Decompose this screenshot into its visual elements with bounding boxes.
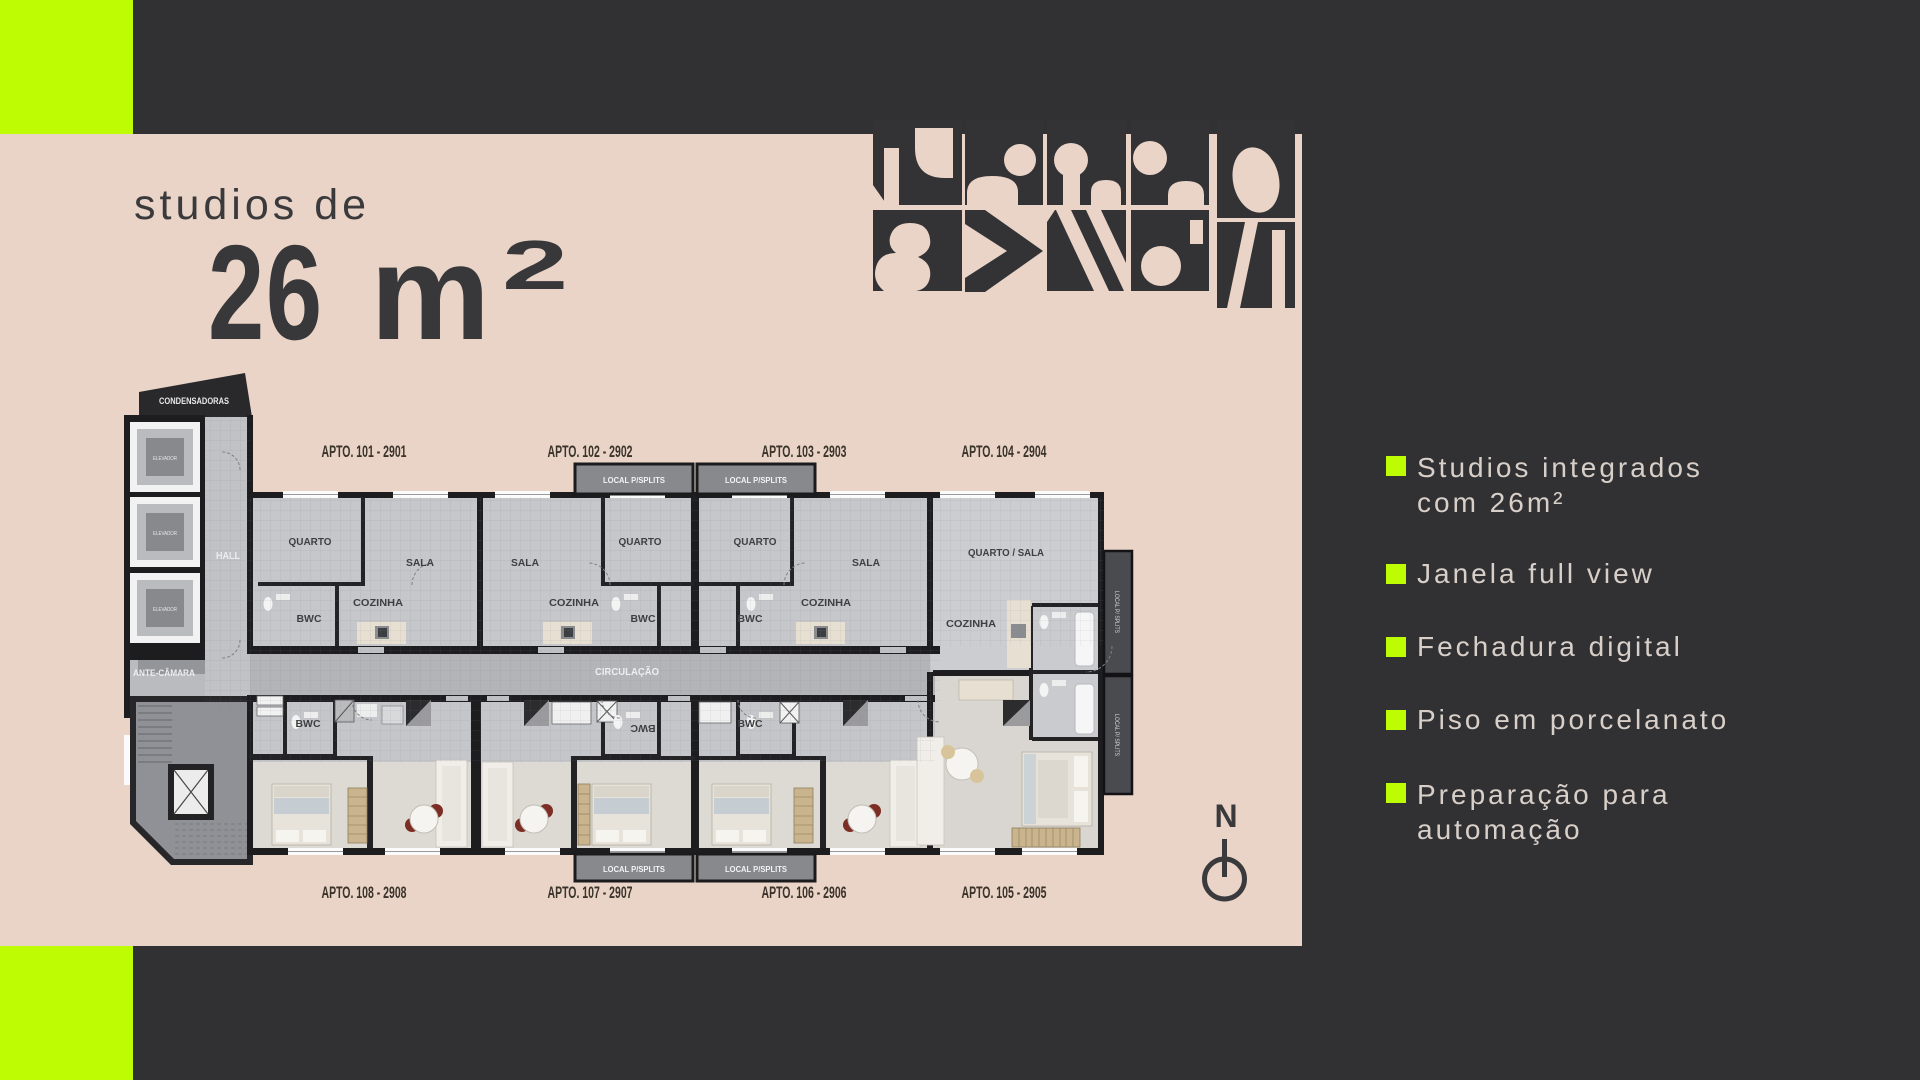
- svg-text:APTO. 104 - 2904: APTO. 104 - 2904: [962, 443, 1048, 461]
- svg-text:ELEVADOR: ELEVADOR: [153, 531, 177, 537]
- svg-text:LOCAL P/SPLITS: LOCAL P/SPLITS: [603, 865, 666, 874]
- svg-text:APTO. 107 - 2907: APTO. 107 - 2907: [548, 884, 633, 902]
- svg-text:LOCAL P/SPLITS: LOCAL P/SPLITS: [725, 865, 788, 874]
- svg-text:LOCAL P/SPLITS: LOCAL P/SPLITS: [725, 476, 788, 485]
- svg-text:ANTE-CÂMARA: ANTE-CÂMARA: [133, 667, 195, 678]
- svg-text:APTO. 103 - 2903: APTO. 103 - 2903: [762, 443, 847, 461]
- svg-text:APTO. 106 - 2906: APTO. 106 - 2906: [762, 884, 847, 902]
- svg-text:APTO. 102 - 2902: APTO. 102 - 2902: [548, 443, 633, 461]
- svg-text:APTO. 105 - 2905: APTO. 105 - 2905: [962, 884, 1047, 902]
- svg-text:LOCAL P/ SPLITS: LOCAL P/ SPLITS: [1113, 591, 1119, 633]
- svg-text:LOCAL P/SPLITS: LOCAL P/SPLITS: [603, 476, 666, 485]
- svg-text:CONDENSADORAS: CONDENSADORAS: [159, 396, 229, 406]
- svg-text:LOCAL P/ SPLITS: LOCAL P/ SPLITS: [1113, 714, 1119, 756]
- svg-text:APTO. 101 - 2901: APTO. 101 - 2901: [322, 443, 407, 461]
- svg-text:APTO. 108 - 2908: APTO. 108 - 2908: [322, 884, 407, 902]
- svg-text:ELEVADOR: ELEVADOR: [153, 456, 177, 462]
- svg-text:ELEVADOR: ELEVADOR: [153, 607, 177, 613]
